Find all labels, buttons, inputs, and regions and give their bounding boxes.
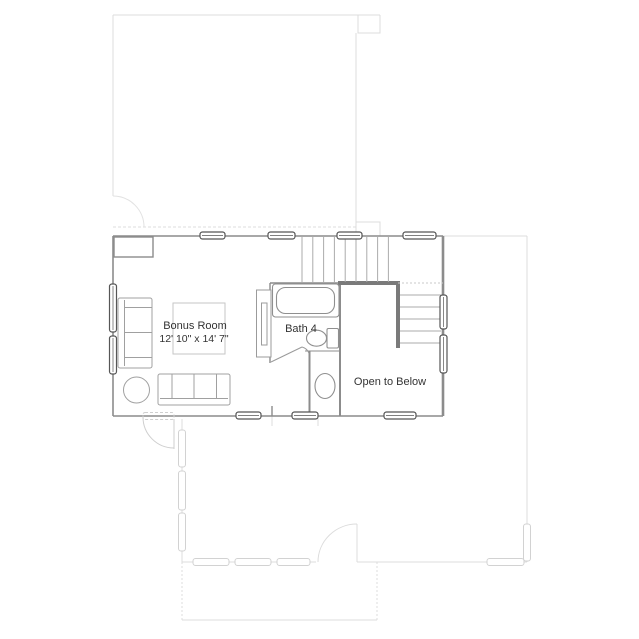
window-left-1 bbox=[110, 284, 117, 332]
window-lower-left-1 bbox=[179, 430, 186, 467]
window-top-1 bbox=[200, 232, 225, 239]
entry-door-arc bbox=[113, 196, 144, 227]
sectional-sofa bbox=[118, 298, 152, 368]
lower-floor-windows bbox=[179, 430, 531, 566]
media-niche bbox=[114, 237, 153, 257]
window-lower-right bbox=[524, 524, 531, 561]
window-lower-bottom-2 bbox=[235, 559, 271, 566]
bathtub-basin bbox=[277, 288, 335, 314]
bath-door bbox=[271, 347, 309, 362]
floor-plan-page: Bonus Room 12' 10" x 14' 7" Bath 4 Open … bbox=[0, 0, 639, 639]
toilet-tank bbox=[327, 329, 339, 349]
window-top-2 bbox=[268, 232, 295, 239]
window-lower-bottom-4 bbox=[487, 559, 524, 566]
window-bottom-1 bbox=[236, 412, 261, 419]
sink bbox=[315, 374, 335, 399]
window-lower-left-3 bbox=[179, 513, 186, 551]
window-bottom-2 bbox=[292, 412, 318, 419]
window-left-2 bbox=[110, 336, 117, 374]
bonus-room-label: Bonus Room bbox=[163, 320, 227, 332]
bathtub bbox=[273, 284, 340, 317]
window-top-3 bbox=[337, 232, 362, 239]
window-bottom-3 bbox=[384, 412, 416, 419]
stairwell-wall bbox=[338, 283, 398, 348]
window-lower-bottom-1 bbox=[193, 559, 229, 566]
stairs-upper-flight bbox=[302, 237, 388, 282]
loveseat bbox=[158, 374, 230, 405]
stairs-lower-flight bbox=[400, 295, 441, 343]
floor-plan: Bonus Room 12' 10" x 14' 7" Bath 4 Open … bbox=[0, 0, 639, 639]
bonus-room-dimensions: 12' 10" x 14' 7" bbox=[159, 333, 229, 345]
window-right-2 bbox=[440, 335, 447, 373]
porch-door-arc bbox=[318, 524, 357, 562]
bonus-room-door bbox=[143, 413, 174, 450]
window-right-1 bbox=[440, 295, 447, 329]
window-lower-left-2 bbox=[179, 471, 186, 510]
window-lower-bottom-3 bbox=[277, 559, 310, 566]
bath-label: Bath 4 bbox=[285, 323, 317, 335]
ottoman bbox=[124, 377, 150, 403]
console-cabinet bbox=[257, 290, 272, 357]
window-top-4 bbox=[403, 232, 436, 239]
open-to-below-label: Open to Below bbox=[354, 376, 426, 388]
